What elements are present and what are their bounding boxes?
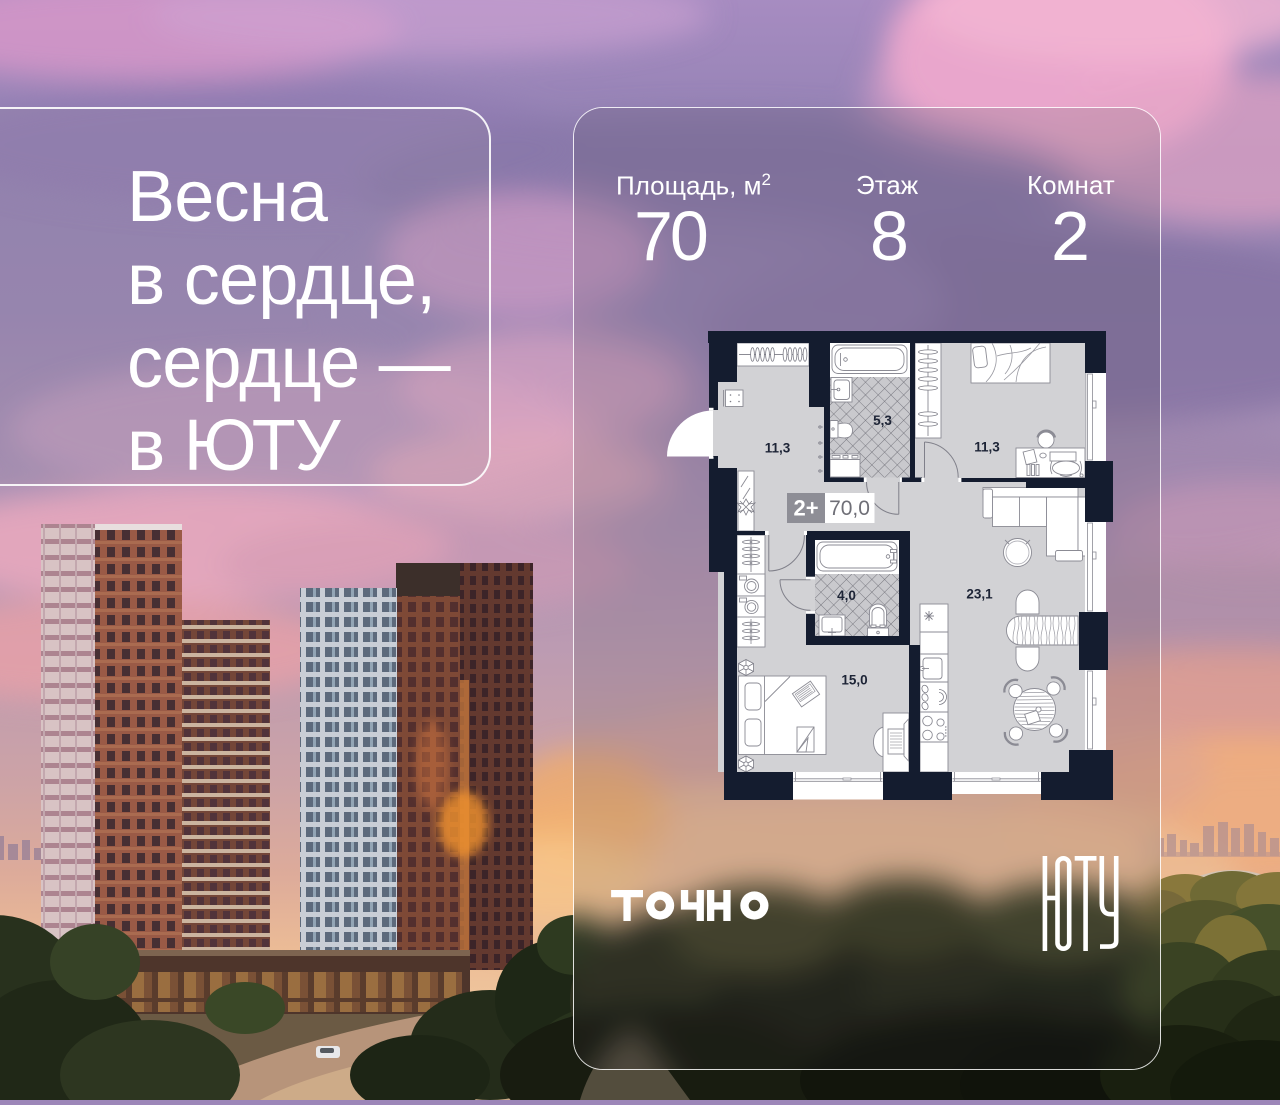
svg-text:70,0: 70,0 [829, 497, 870, 520]
svg-text:11,3: 11,3 [765, 441, 791, 456]
svg-text:4,0: 4,0 [837, 588, 856, 603]
svg-text:2+: 2+ [793, 496, 818, 521]
svg-text:5,3: 5,3 [873, 413, 892, 428]
svg-text:23,1: 23,1 [966, 587, 993, 602]
svg-text:11,3: 11,3 [974, 440, 1000, 455]
svg-text:15,0: 15,0 [841, 673, 867, 688]
